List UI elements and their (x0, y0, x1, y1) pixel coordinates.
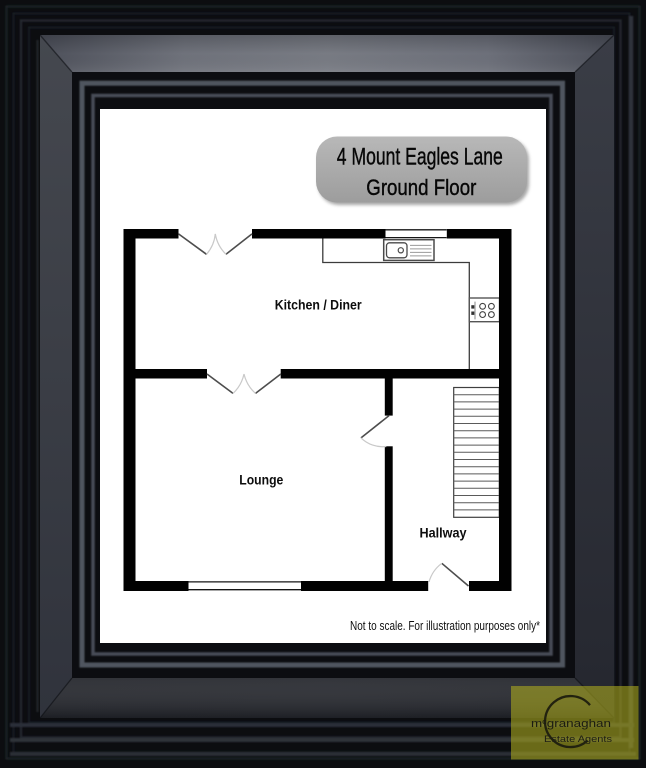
svg-text:Kitchen / Diner: Kitchen / Diner (275, 298, 363, 313)
svg-text:Hallway: Hallway (420, 525, 467, 540)
svg-text:Ground Floor: Ground Floor (366, 175, 476, 200)
svg-text:Estate Agents: Estate Agents (544, 734, 612, 745)
svg-text:4 Mount Eagles Lane: 4 Mount Eagles Lane (337, 143, 503, 170)
svg-text:Not to scale. For illustration: Not to scale. For illustration purposes … (350, 618, 540, 633)
svg-text:Lounge: Lounge (239, 472, 283, 488)
